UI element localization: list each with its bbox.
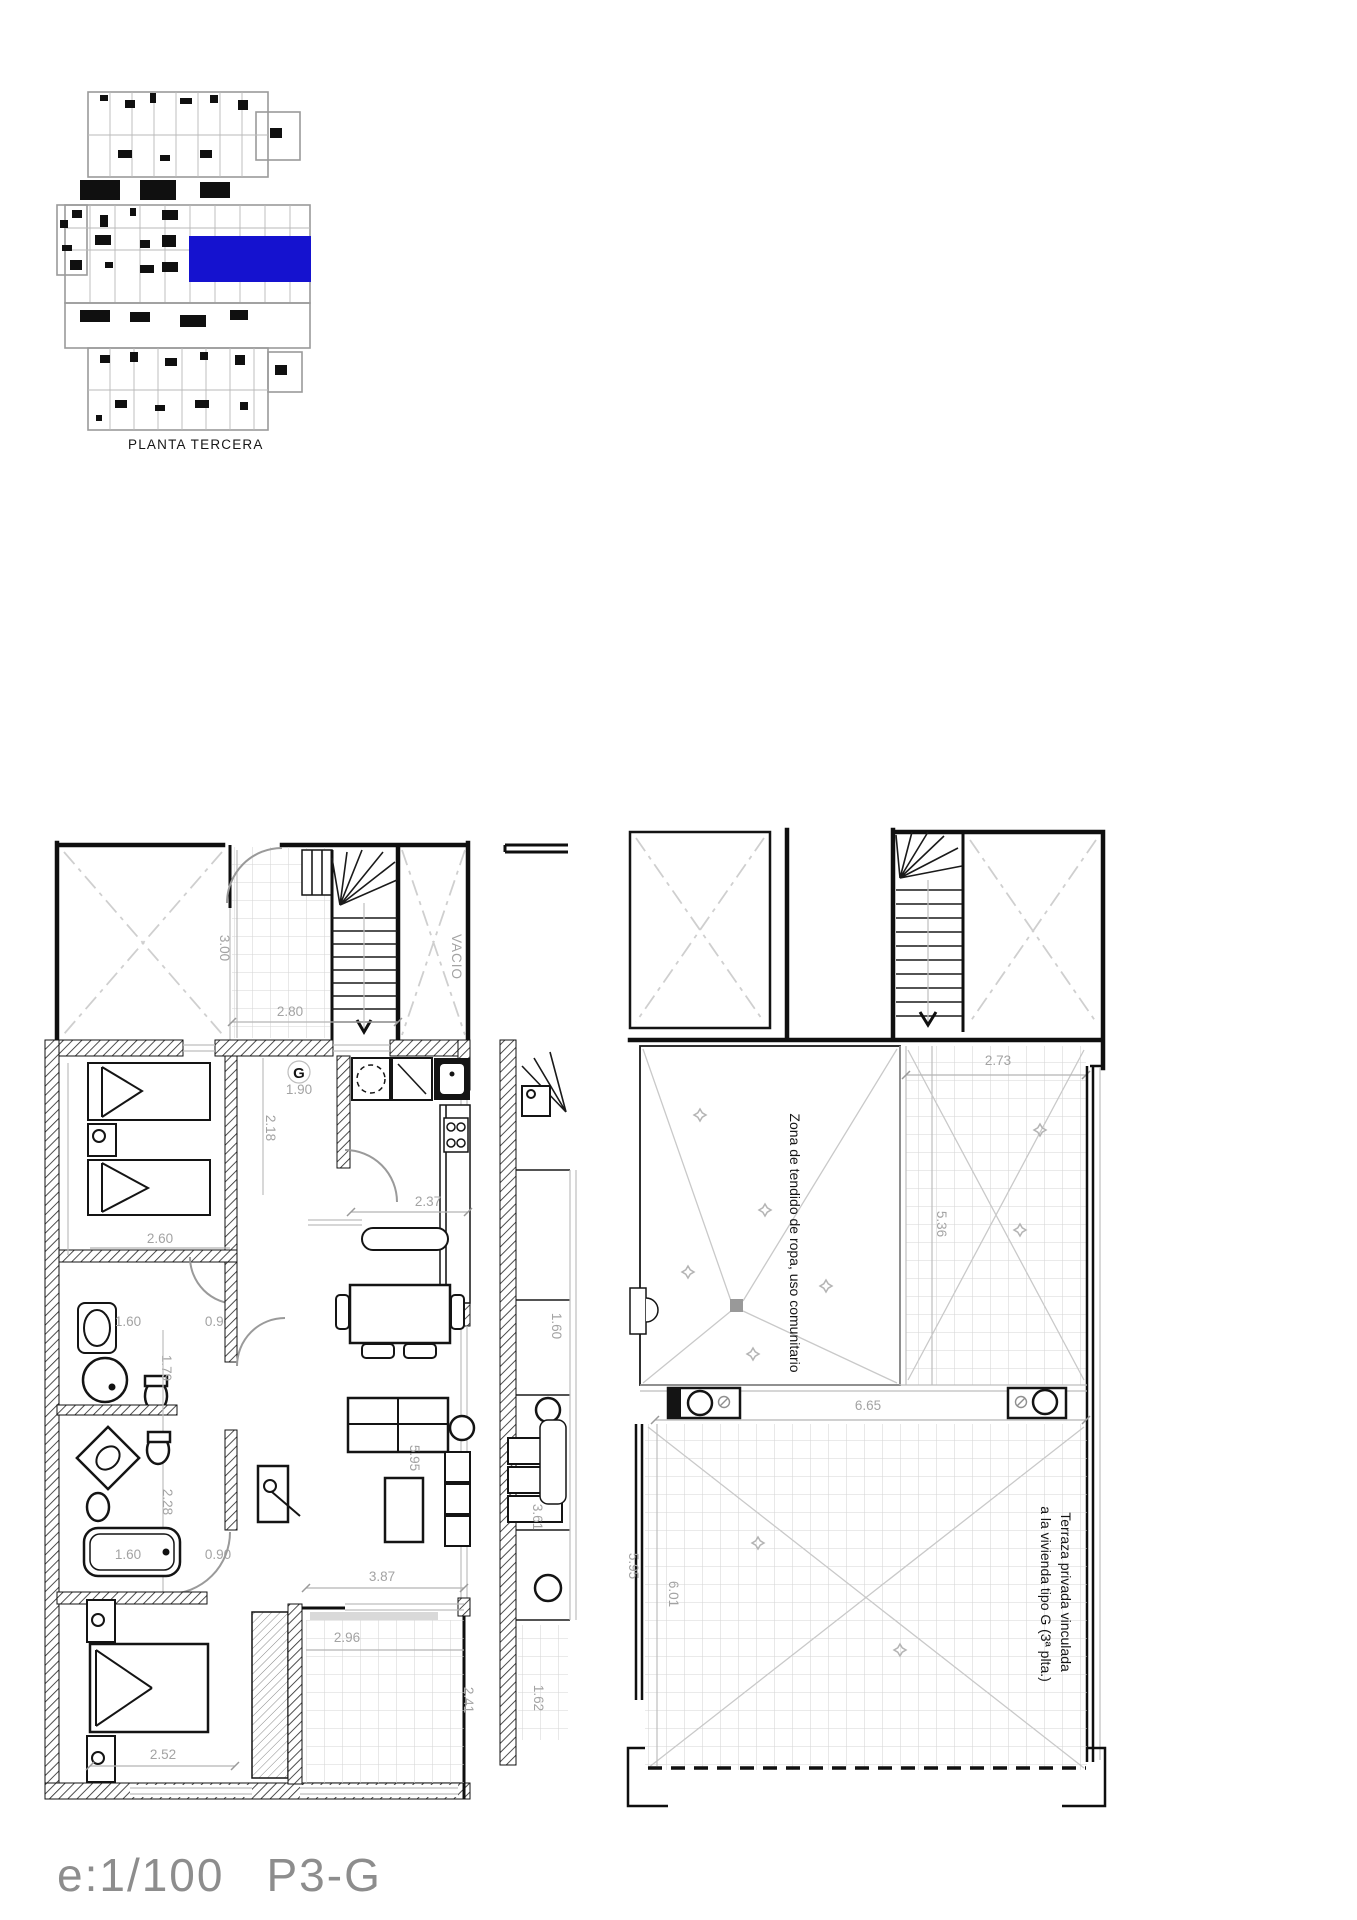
dim-terrace-length-b: 6.01 <box>666 1581 681 1607</box>
key-plan-unit-highlight <box>189 236 311 282</box>
dim-living-length: 5.95 <box>407 1445 422 1471</box>
sheet-code: P3-G <box>266 1849 381 1901</box>
label-vacio: VACIO <box>449 934 464 980</box>
staircase-right <box>896 832 963 1032</box>
dim-terrace-depth: 2.41 <box>461 1687 476 1713</box>
dim-upper-terrace-length: 5.36 <box>934 1211 949 1237</box>
dim-bathtub-length: 1.60 <box>115 1547 141 1562</box>
label-unit-letter: G <box>293 1065 305 1082</box>
adjacent-unit-strip: 1.60 3.61 1.62 <box>500 845 576 1765</box>
scale-label: e:1/100 <box>57 1849 224 1901</box>
dim-living-width: 3.87 <box>369 1569 395 1584</box>
laundry-appliances <box>352 1058 470 1100</box>
dim-terrace-length-a: 5.95 <box>626 1553 641 1579</box>
dim-bedroom2-width: 2.52 <box>150 1747 176 1762</box>
key-plan-caption: PLANTA TERCERA <box>128 437 264 452</box>
drawing-sheet: PLANTA TERCERA <box>0 0 1357 1920</box>
dim-neighbor-gallery-width: 1.60 <box>549 1313 564 1339</box>
dim-neighbor-room-length: 3.61 <box>530 1504 545 1530</box>
dim-terrace-width: 2.96 <box>334 1630 360 1645</box>
dim-stair-hall-depth: 3.00 <box>217 935 232 961</box>
apartment-terrace <box>306 1612 464 1783</box>
wardrobe <box>252 1612 288 1778</box>
sheet-footer: e:1/100P3-G <box>57 1848 382 1902</box>
main-terrace <box>628 1424 1105 1806</box>
drying-zone <box>630 1046 900 1385</box>
dim-kitchen-width: 2.37 <box>415 1194 441 1209</box>
dim-bath1-width: 1.60 <box>115 1314 141 1329</box>
bar-counter <box>308 1220 448 1250</box>
dim-terrace-width-right: 6.65 <box>855 1398 881 1413</box>
planter-right <box>1008 1388 1066 1418</box>
kitchen-counter <box>440 1105 470 1303</box>
dim-bedroom1-width: 2.60 <box>147 1231 173 1246</box>
dim-stair-hall-width: 2.80 <box>277 1004 303 1019</box>
label-drying-zone: Zona de tendido de ropa, uso comunitario <box>787 1113 803 1372</box>
dim-neighbor-terrace-depth: 1.62 <box>531 1685 546 1711</box>
dim-upper-terrace-width: 2.73 <box>985 1053 1011 1068</box>
dim-entry-width: 1.90 <box>286 1082 312 1097</box>
dining-table <box>336 1285 464 1358</box>
right-floor-plan: Zona de tendido de ropa, uso comunitario… <box>626 830 1105 1806</box>
dim-hall-length: 2.18 <box>263 1115 278 1141</box>
left-floor-plan: 3.00 2.80 VACIO <box>45 843 476 1799</box>
key-plan <box>55 70 355 460</box>
label-private-terrace-line2: a la vivienda tipo G (3ª plta.) <box>1038 1506 1054 1682</box>
planter-left <box>668 1388 740 1418</box>
floor-plans: 3.00 2.80 VACIO <box>40 820 1357 1830</box>
sofa-group <box>258 1398 474 1546</box>
dim-bath1-length: 1.79 <box>159 1355 174 1381</box>
dim-bath2-length: 2.28 <box>160 1489 175 1515</box>
label-private-terrace-line1: Terraza privada vinculada <box>1058 1512 1074 1672</box>
bedroom2 <box>87 1600 208 1782</box>
bedroom1 <box>88 1063 210 1215</box>
upper-terrace <box>900 1046 1086 1385</box>
